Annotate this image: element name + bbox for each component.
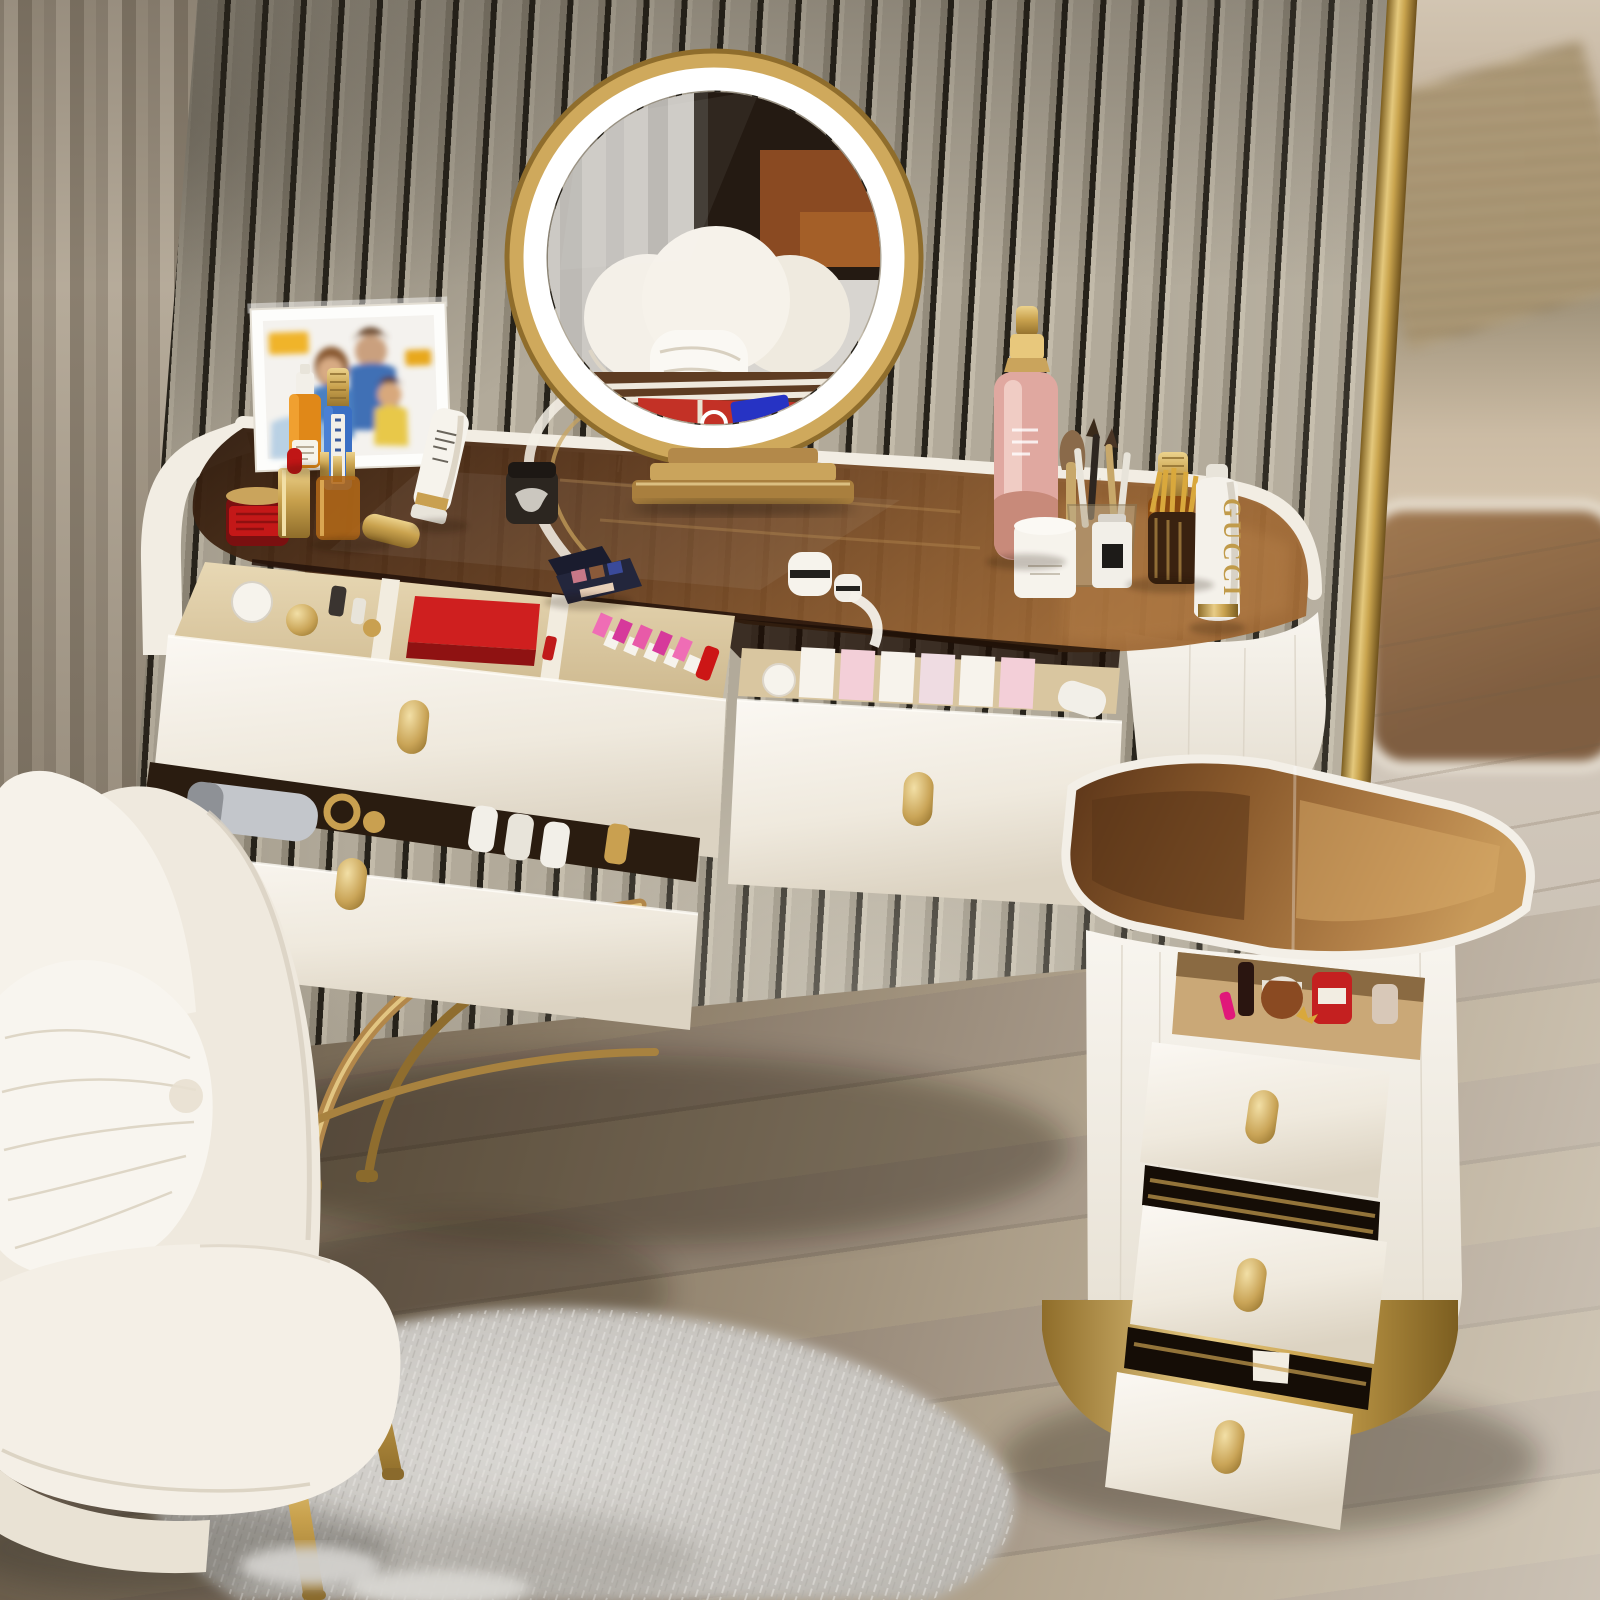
pillow-pleats	[2, 1030, 196, 1248]
red-cream-jar	[226, 487, 289, 546]
stool-back-outer-petal	[0, 786, 321, 1290]
cabinet-drawer-2	[1130, 1205, 1387, 1364]
tabletop-items: GUCCI	[226, 297, 1245, 646]
white-cream-jars	[788, 552, 878, 646]
cabinet-drawer-3	[1105, 1372, 1353, 1530]
gold-stick-cup	[1148, 468, 1200, 584]
pink-perfume-atomizer	[994, 306, 1058, 560]
right-pedestal	[1125, 612, 1326, 806]
stool-gold-legs	[280, 1308, 404, 1600]
eyeshadow-palette	[548, 546, 642, 604]
drawer-handle	[1243, 1088, 1280, 1146]
mirror-panel-reflection	[1336, 0, 1600, 1010]
wall-lighting	[0, 0, 1600, 1600]
petal-back-stool	[0, 771, 404, 1600]
reflected-cabinet	[1362, 500, 1600, 772]
mirror-reflection	[548, 60, 900, 480]
glass-top	[193, 428, 1309, 652]
makeup-brush-holder	[1060, 418, 1136, 586]
amber-bottle	[1148, 452, 1194, 562]
drawer-handle	[1231, 1256, 1268, 1314]
drawer-handle	[395, 699, 430, 756]
drawer-front	[152, 636, 726, 858]
fur-rug	[148, 1308, 1014, 1600]
white-candle	[1014, 517, 1076, 598]
photo-frame	[247, 297, 453, 472]
wood-floor	[0, 880, 1600, 1600]
gucci-bottle: GUCCI	[1194, 464, 1245, 621]
drawer-middle-open	[728, 647, 1122, 908]
drawer-front	[728, 700, 1122, 908]
orange-spray-bottle	[289, 364, 321, 468]
vanity-table	[141, 372, 1400, 965]
cabinet-gold-plinth	[1042, 1300, 1458, 1450]
cabinet-drawer-1	[1140, 1042, 1390, 1198]
floor-shadows	[210, 1055, 1540, 1535]
white-perfume-black-label	[1092, 514, 1132, 588]
drawer-top-left-open	[152, 562, 735, 858]
furniture-scene: GUCCI	[0, 0, 1600, 1600]
stool-seat	[0, 1244, 400, 1515]
table-left-lip	[141, 420, 252, 655]
gold-lipstick-case	[278, 448, 310, 538]
drawer-handle	[902, 771, 935, 826]
led-mirror	[508, 52, 920, 516]
drawer-front	[85, 845, 698, 1030]
gold-mirror-edge	[1336, 0, 1418, 865]
reflected-floor-lines	[1336, 520, 1600, 1010]
side-cabinet	[1042, 759, 1530, 1530]
table-gold-legs	[296, 905, 655, 1192]
stool-back-inner-petal	[0, 771, 196, 1050]
white-cosmetic-tube	[409, 406, 472, 526]
reflected-rug	[1340, 40, 1600, 349]
amber-lipstick-holder	[316, 452, 422, 551]
drawer-bottom-left-open	[85, 762, 700, 1030]
cabinet-glass-top	[1066, 759, 1531, 956]
gucci-label: GUCCI	[1218, 498, 1245, 599]
slat-wall	[0, 0, 1600, 1600]
dark-cream-jar	[506, 462, 558, 524]
table-back-rim	[243, 424, 1314, 592]
drawer-handle	[1209, 1418, 1246, 1476]
blue-bottle-gold-cap	[324, 368, 352, 490]
mirror-base	[630, 448, 854, 516]
scene-vanity-room: GUCCI	[0, 0, 1600, 1600]
drawer-handle	[333, 857, 368, 912]
fur-tufts-foreground	[240, 1546, 530, 1600]
curtain	[0, 0, 198, 972]
stool-pillow	[0, 960, 213, 1277]
